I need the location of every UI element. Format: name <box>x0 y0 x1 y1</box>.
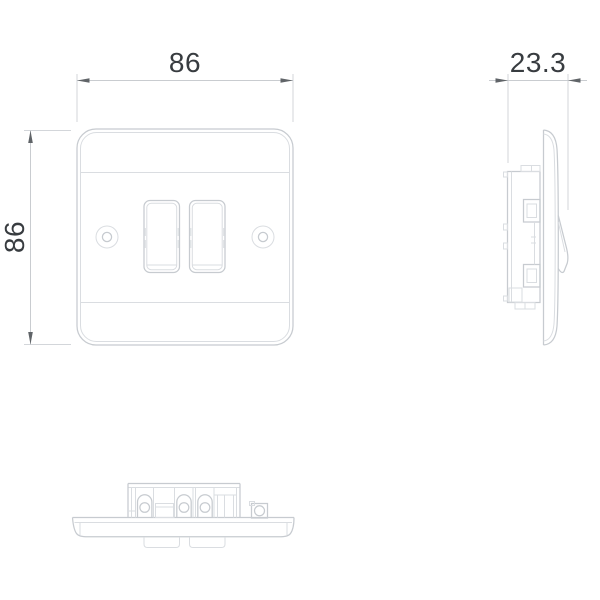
arrowhead-top <box>28 131 33 144</box>
rocker-switch-left <box>144 201 180 273</box>
terminal-arch-2 <box>177 495 191 518</box>
bottom-fixing-screw <box>250 502 268 519</box>
dimension-width-label: 86 <box>135 48 235 78</box>
dimension-height <box>24 131 71 345</box>
bottom-rocker-tab-left <box>144 537 180 548</box>
faceplate-outer-outline <box>77 129 293 345</box>
bottom-view <box>73 484 295 548</box>
dimension-depth <box>489 74 587 210</box>
arrowhead-depth-left <box>496 78 509 83</box>
arrowhead-bottom <box>28 332 33 345</box>
drawing-linework <box>0 0 600 600</box>
rocker-switch-right <box>190 201 226 273</box>
arrowhead-depth-right <box>568 78 581 83</box>
side-view <box>504 130 568 345</box>
side-terminal-upper <box>524 200 541 223</box>
dimension-width <box>77 74 293 122</box>
screw-hole-right <box>252 226 274 248</box>
dimension-height-label: 86 <box>0 187 30 287</box>
terminal-arch-3 <box>198 495 212 518</box>
side-mechanism-body <box>504 166 541 310</box>
side-plate-front-inner-edge <box>544 134 556 341</box>
side-rocker-profile <box>558 216 568 273</box>
screw-hole-left <box>96 226 118 248</box>
bottom-rocker-tab-right <box>190 537 226 548</box>
terminal-arch-1 <box>138 495 152 518</box>
side-terminal-lower <box>524 265 541 288</box>
technical-drawing-canvas: 86 86 23.3 <box>0 0 600 600</box>
side-plate-front-edge <box>544 130 559 345</box>
front-view <box>77 129 293 345</box>
bottom-mechanism-block <box>128 484 240 518</box>
arrowhead-right <box>281 78 294 83</box>
dimension-depth-label: 23.3 <box>488 48 588 78</box>
bottom-plate-profile <box>73 518 295 537</box>
arrowhead-left <box>77 78 90 83</box>
